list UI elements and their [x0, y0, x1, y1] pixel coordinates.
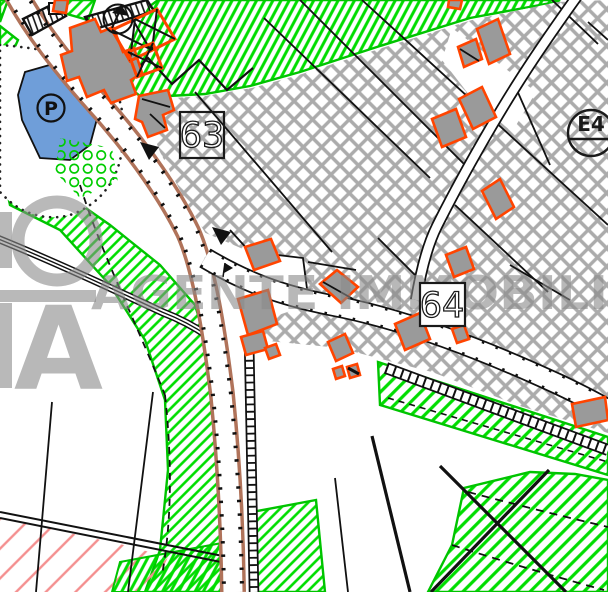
- svg-text:E4: E4: [577, 112, 605, 136]
- watermark-logo-letter: A: [14, 283, 103, 417]
- svg-text:64: 64: [420, 286, 465, 326]
- zone-label-63: 63: [180, 112, 225, 158]
- watermark-agency-text: AGENTE IMMOBILI: [91, 266, 608, 320]
- svg-text:63: 63: [180, 116, 225, 156]
- cadastral-map[interactable]: A AGENTE IMMOBILI 63 64 E4 P: [0, 0, 608, 592]
- zone-label-64: 64: [420, 283, 465, 326]
- svg-text:P: P: [44, 98, 58, 120]
- map-canvas: A AGENTE IMMOBILI 63 64 E4 P: [0, 0, 608, 592]
